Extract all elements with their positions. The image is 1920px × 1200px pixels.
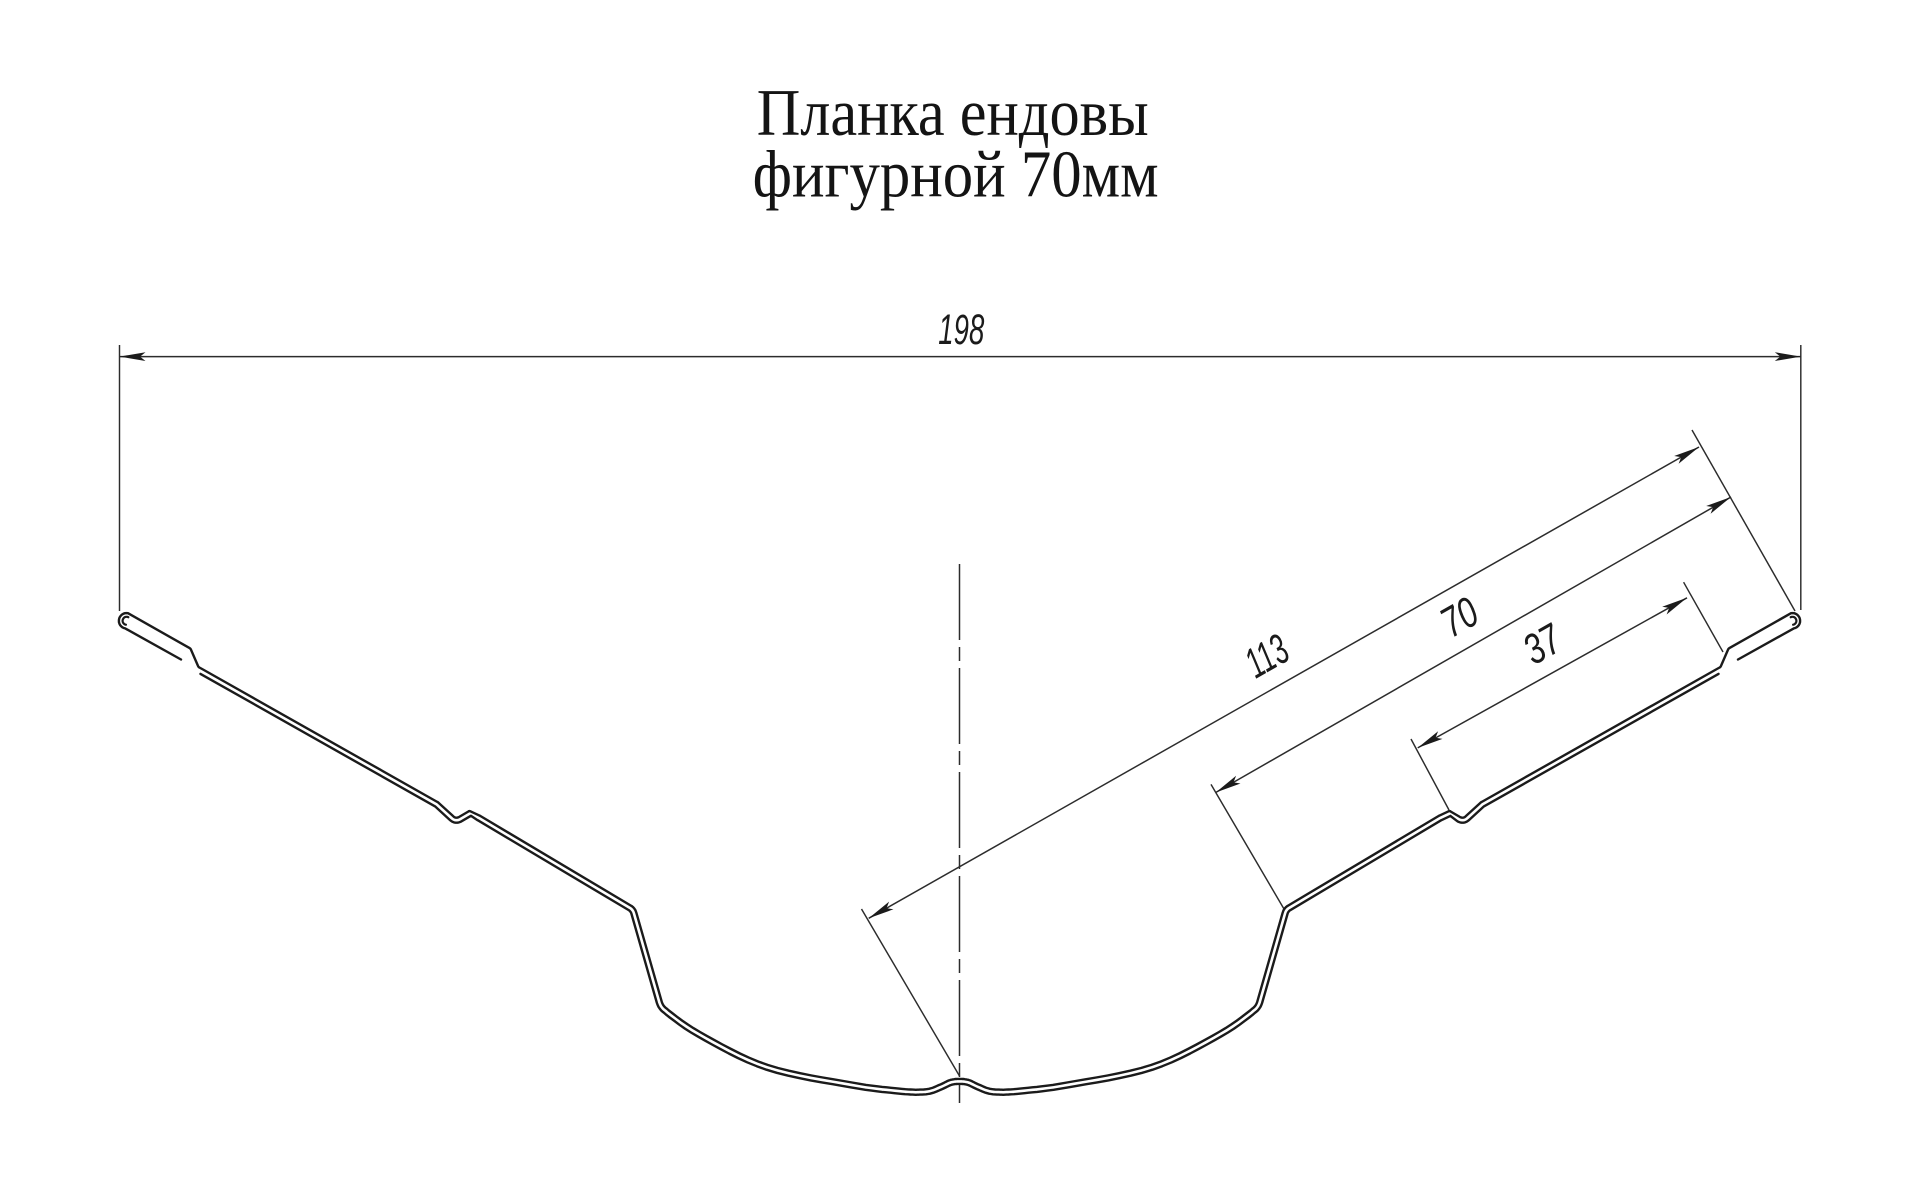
svg-text:фигурной 70мм: фигурной 70мм	[753, 137, 1159, 211]
svg-text:198: 198	[938, 307, 984, 354]
